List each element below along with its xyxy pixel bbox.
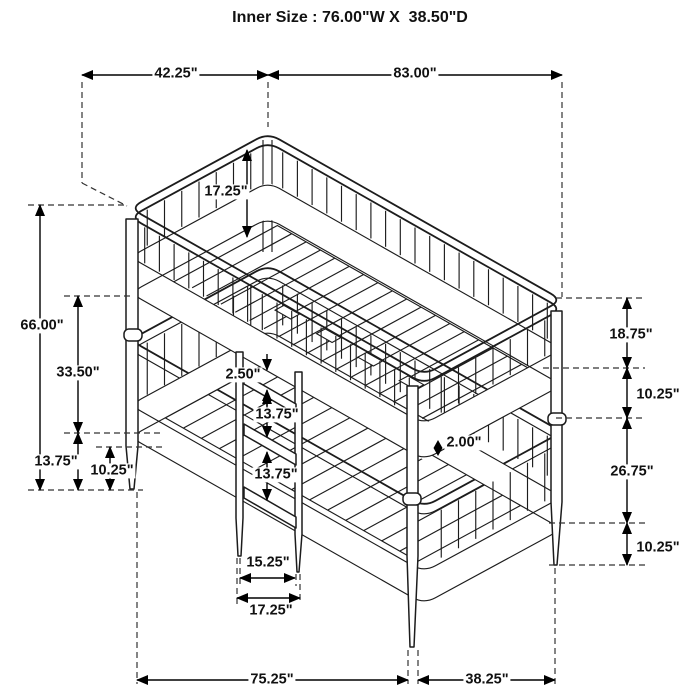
inner-size-title: Inner Size : 76.00"W X 38.50"D	[232, 9, 468, 27]
dim-ladder-gap-1: 13.75"	[253, 407, 300, 422]
dim-height-upper-to-lower: 33.50"	[54, 365, 101, 380]
dim-ladder-gap-2: 13.75"	[252, 467, 299, 482]
dim-right-upper: 18.75"	[607, 327, 654, 342]
dim-clearance-left: 10.25"	[88, 463, 135, 478]
dim-right-clearance: 10.25"	[634, 540, 681, 555]
dim-top-width-left: 42.25"	[152, 66, 199, 81]
dim-ladder-gap-small: 2.50"	[223, 367, 262, 382]
dim-top-width-right: 83.00"	[391, 66, 438, 81]
bunk-bed-dimension-diagram: Inner Size : 76.00"W X 38.50"D 42.25" 83…	[0, 0, 700, 700]
dim-ladder-width-inner: 15.25"	[244, 555, 291, 570]
dim-height-lower-rail: 13.75"	[32, 454, 79, 469]
dim-right-lower: 26.75"	[608, 464, 655, 479]
dim-right-gap: 10.25"	[634, 387, 681, 402]
dim-base-length: 75.25"	[248, 672, 295, 687]
dim-slat-thickness: 2.00"	[444, 435, 483, 450]
dim-base-depth: 38.25"	[463, 672, 510, 687]
dim-ladder-width-outer: 17.25"	[247, 603, 294, 618]
dim-upper-rail-depth: 17.25"	[202, 184, 249, 199]
dim-height-total: 66.00"	[18, 318, 65, 333]
bunk-bed-line-drawing	[0, 0, 700, 700]
